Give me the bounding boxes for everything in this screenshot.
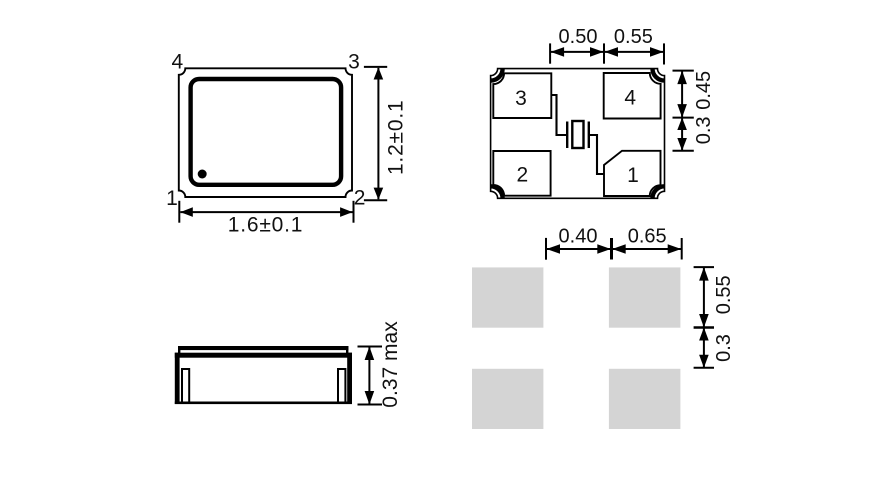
svg-text:1: 1 — [166, 187, 178, 210]
svg-text:0.3: 0.3 — [693, 116, 715, 144]
svg-text:0.50: 0.50 — [559, 26, 598, 48]
svg-text:0.37 max: 0.37 max — [379, 321, 402, 408]
svg-text:0.55: 0.55 — [614, 26, 653, 48]
svg-text:0.40: 0.40 — [559, 225, 598, 247]
svg-text:3: 3 — [348, 51, 360, 74]
svg-text:2: 2 — [354, 186, 366, 209]
svg-text:1.2±0.1: 1.2±0.1 — [384, 100, 407, 176]
svg-text:0.65: 0.65 — [628, 225, 667, 247]
svg-text:0.55: 0.55 — [713, 275, 735, 314]
svg-text:4: 4 — [624, 87, 636, 110]
svg-text:3: 3 — [515, 87, 527, 110]
svg-text:0.45: 0.45 — [693, 71, 715, 110]
svg-text:1: 1 — [627, 164, 639, 187]
svg-text:2: 2 — [516, 163, 528, 186]
svg-text:1.6±0.1: 1.6±0.1 — [228, 213, 304, 236]
svg-text:0.3: 0.3 — [713, 334, 735, 362]
svg-text:4: 4 — [171, 51, 183, 74]
